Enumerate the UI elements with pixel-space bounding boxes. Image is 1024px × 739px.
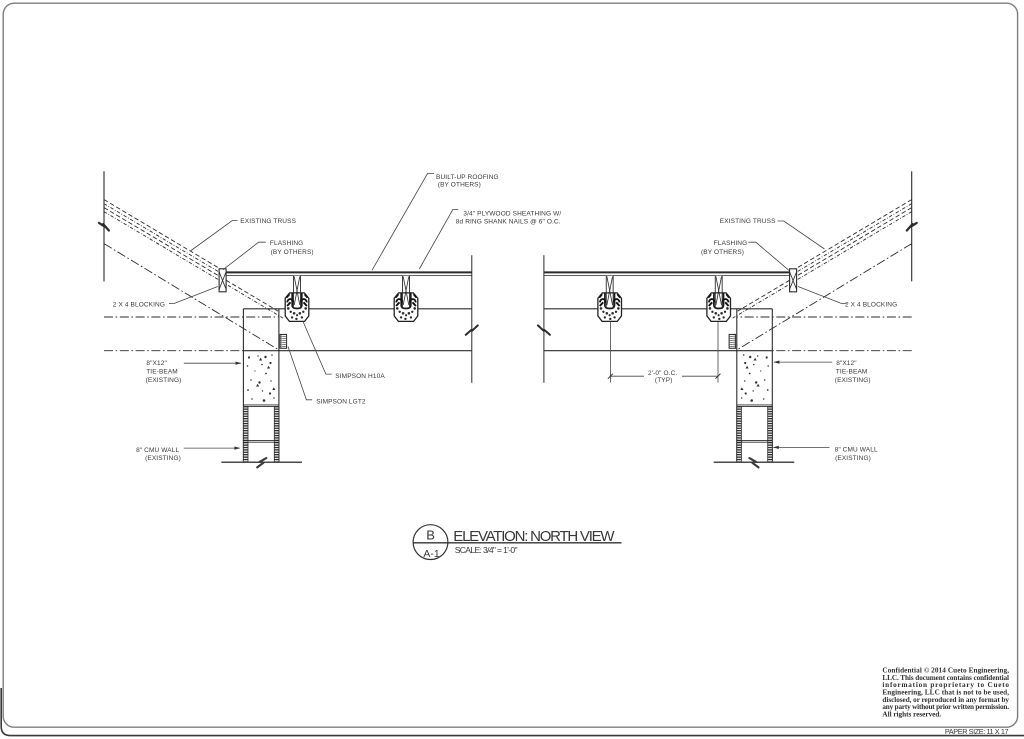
svg-text:BUILT-UP ROOFING: BUILT-UP ROOFING xyxy=(436,174,499,181)
svg-text:SIMPSON LGT2: SIMPSON LGT2 xyxy=(316,399,366,406)
svg-text:SCALE: 3/4" = 1'-0": SCALE: 3/4" = 1'-0" xyxy=(455,545,518,555)
svg-text:ELEVATION: NORTH VIEW: ELEVATION: NORTH VIEW xyxy=(453,528,615,545)
svg-text:8" CMU WALL: 8" CMU WALL xyxy=(136,447,179,454)
svg-text:SIMPSON H10A: SIMPSON H10A xyxy=(335,373,385,380)
svg-text:(EXISTING): (EXISTING) xyxy=(146,377,182,384)
svg-text:8"X12": 8"X12" xyxy=(146,360,167,367)
svg-text:EXISTING TRUSS: EXISTING TRUSS xyxy=(240,218,296,225)
svg-text:8"X12": 8"X12" xyxy=(836,360,857,367)
svg-text:2 X 4 BLOCKING: 2 X 4 BLOCKING xyxy=(845,301,897,308)
svg-text:2'-0" O.C.: 2'-0" O.C. xyxy=(648,370,677,377)
svg-text:(TYP): (TYP) xyxy=(655,377,673,384)
svg-text:All rights reserved.: All rights reserved. xyxy=(882,710,941,718)
svg-text:PAPER SIZE: 11 X 17: PAPER SIZE: 11 X 17 xyxy=(945,727,1009,736)
svg-text:B: B xyxy=(426,528,435,543)
svg-text:8" CMU WALL: 8" CMU WALL xyxy=(835,446,878,453)
svg-text:A-1: A-1 xyxy=(423,548,440,560)
svg-text:FLASHING: FLASHING xyxy=(270,240,303,247)
svg-text:(EXISTING): (EXISTING) xyxy=(835,455,871,462)
svg-text:3/4" PLYWOOD SHEATHING W/: 3/4" PLYWOOD SHEATHING W/ xyxy=(463,210,561,217)
svg-text:(EXISTING): (EXISTING) xyxy=(145,455,181,462)
svg-text:(EXISTING): (EXISTING) xyxy=(835,377,871,384)
svg-text:EXISTING TRUSS: EXISTING TRUSS xyxy=(720,218,776,225)
svg-text:(BY OTHERS): (BY OTHERS) xyxy=(271,249,314,256)
svg-text:TIE-BEAM: TIE-BEAM xyxy=(146,368,178,375)
svg-text:(BY OTHERS): (BY OTHERS) xyxy=(701,249,744,256)
svg-text:2 X 4 BLOCKING: 2 X 4 BLOCKING xyxy=(113,301,165,308)
svg-text:(BY OTHERS): (BY OTHERS) xyxy=(438,181,481,188)
svg-text:TIE-BEAM: TIE-BEAM xyxy=(836,368,868,375)
svg-text:8d RING SHANK NAILS @ 6" O.C.: 8d RING SHANK NAILS @ 6" O.C. xyxy=(456,219,561,226)
svg-text:FLASHING: FLASHING xyxy=(714,240,747,247)
